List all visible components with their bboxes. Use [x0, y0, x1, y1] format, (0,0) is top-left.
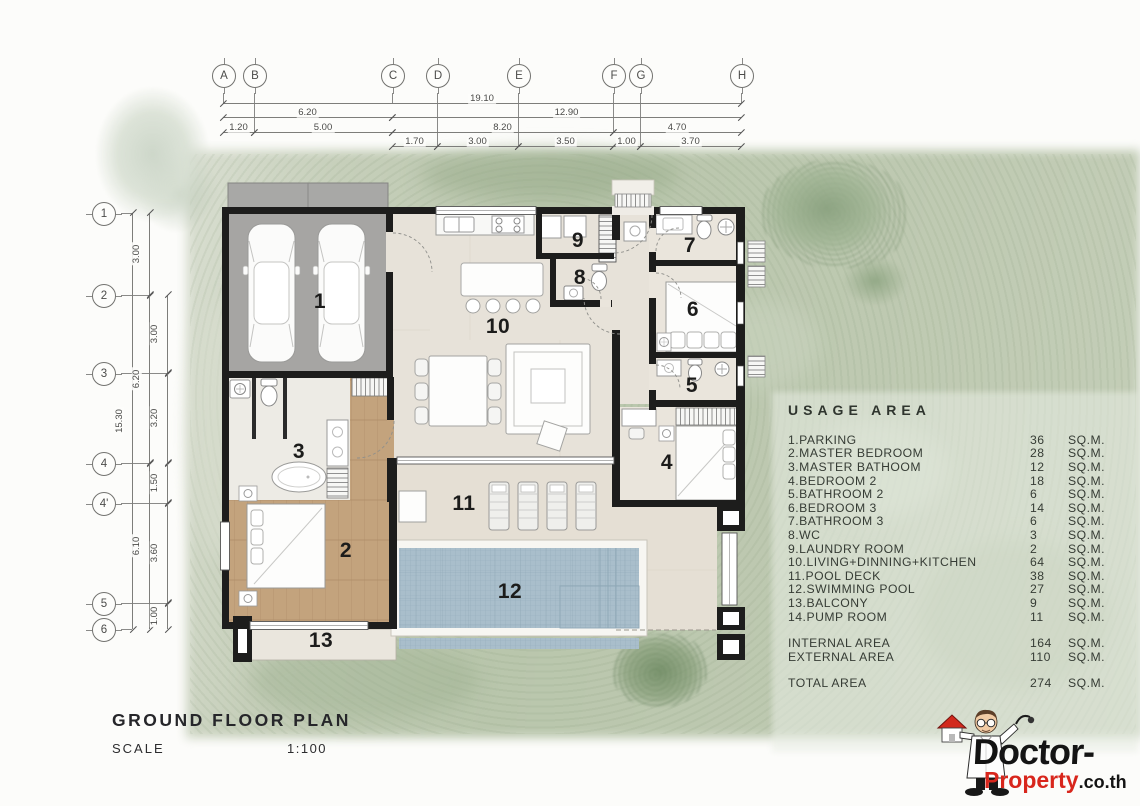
usage-row: 5.BATHROOM 26SQ.M. [788, 487, 1124, 501]
ac-unit-icon [748, 266, 765, 287]
dim-left: 1.00 [167, 603, 168, 629]
scale-label: SCALE [112, 741, 165, 756]
lounger-icon [518, 482, 538, 530]
dim-top: 12.90 [392, 117, 741, 118]
room-label-bathroom-3: 7 [684, 234, 696, 258]
chair-icon [629, 428, 644, 439]
usage-row: 11.POOL DECK38SQ.M. [788, 569, 1124, 583]
shower-icon [230, 380, 250, 398]
grid-marker-H: H [730, 64, 754, 88]
grid-marker-E: E [507, 64, 531, 88]
blueprint-canvas: 1 2 3 4 5 6 7 8 9 10 11 12 13 A B C D E … [0, 0, 1140, 806]
dim-left: 3.60 [167, 503, 168, 603]
dim-top: 6.20 [223, 117, 392, 118]
usage-row: 9.LAUNDRY ROOM2SQ.M. [788, 542, 1124, 556]
dryer-icon [624, 222, 646, 241]
dim-top: 3.50 [518, 146, 613, 147]
ac-unit-icon [748, 356, 765, 377]
dim-left: 1.50 [167, 463, 168, 503]
dim-left: 3.00 [149, 213, 150, 295]
dim-top: 1.70 [392, 146, 437, 147]
usage-summary-row: EXTERNAL AREA110SQ.M. [788, 650, 1124, 664]
room-label-pool-deck: 11 [452, 492, 475, 516]
grid-marker-D: D [426, 64, 450, 88]
cabinet-icon [327, 468, 348, 498]
usage-row: 1.PARKING36SQ.M. [788, 433, 1124, 447]
room-label-master-bedroom: 2 [340, 539, 352, 563]
dim-left: 3.20 [167, 373, 168, 463]
logo-brand-red: Property.co.th [984, 767, 1127, 793]
logo-brand-black: Doctor- [972, 731, 1095, 772]
shower-icon [718, 219, 734, 235]
grid-marker-5: 5 [92, 592, 116, 616]
toilet-icon [261, 379, 277, 406]
grid-marker-4p: 4' [92, 492, 116, 516]
room-label-balcony: 13 [309, 629, 333, 653]
room-label-bathroom-2: 5 [686, 374, 698, 398]
dim-left: 6.20 [149, 295, 150, 463]
bed-icon [239, 486, 325, 606]
room-label-wc: 8 [574, 266, 586, 290]
car-icon [243, 224, 300, 362]
toilet-icon [592, 264, 608, 291]
grid-marker-A: A [212, 64, 236, 88]
lounger-icon [576, 482, 596, 530]
dim-top: 3.00 [437, 146, 518, 147]
lounger-icon [547, 482, 567, 530]
usage-total-row: TOTAL AREA274SQ.M. [788, 677, 1124, 691]
grid-marker-6: 6 [92, 618, 116, 642]
entry-step [612, 180, 654, 195]
usage-row: 3.MASTER BATHOOM12SQ.M. [788, 460, 1124, 474]
grid-marker-4: 4 [92, 452, 116, 476]
grid-marker-G: G [629, 64, 653, 88]
usage-summary-row: INTERNAL AREA164SQ.M. [788, 636, 1124, 650]
usage-table-title: USAGE AREA [788, 402, 1124, 418]
dim-top: 1.00 [613, 146, 640, 147]
vanity-icon [327, 420, 348, 466]
dim-top-total: 19.10 [223, 103, 741, 104]
vanity-icon [657, 360, 681, 376]
usage-row: 8.WC3SQ.M. [788, 528, 1124, 542]
dim-top: 5.00 [254, 132, 392, 133]
desk-icon [622, 409, 656, 426]
room-label-bedroom-3: 6 [687, 298, 699, 322]
usage-row: 13.BALCONY9SQ.M. [788, 596, 1124, 610]
deck-table-icon [399, 491, 426, 522]
closet-icon [676, 408, 738, 425]
usage-row: 4.BEDROOM 218SQ.M. [788, 474, 1124, 488]
dim-left: 3.00 [167, 295, 168, 373]
grid-marker-F: F [602, 64, 626, 88]
dining-table-icon [415, 356, 501, 426]
page-title: GROUND FLOOR PLAN [112, 710, 351, 731]
kitchen-counter-icon [436, 214, 534, 235]
dim-left-total: 15.30 [132, 213, 133, 629]
usage-row: 7.BATHROOM 36SQ.M. [788, 515, 1124, 529]
room-label-master-bathroom: 3 [293, 440, 305, 464]
usage-area-table: USAGE AREA 1.PARKING36SQ.M. 2.MASTER BED… [788, 402, 1124, 690]
pool-infinity-edge [399, 638, 639, 649]
hallway-floor [614, 214, 655, 404]
lounger-icon [489, 482, 509, 530]
room-label-pool: 12 [498, 580, 522, 604]
entry-mat [615, 194, 651, 207]
dim-top: 8.20 [392, 132, 613, 133]
grid-marker-B: B [243, 64, 267, 88]
wardrobe-icon [352, 378, 389, 396]
vanity-icon [656, 215, 692, 234]
room-label-laundry: 9 [572, 229, 584, 253]
brand-logo: Doctor- Property.co.th [900, 698, 1140, 806]
grid-marker-3: 3 [92, 362, 116, 386]
room-label-living: 10 [486, 315, 510, 339]
shower-icon [715, 362, 729, 376]
usage-row: 6.BEDROOM 314SQ.M. [788, 501, 1124, 515]
scale-value: 1:100 [287, 741, 327, 756]
room-label-parking: 1 [314, 290, 326, 314]
bathtub-icon [272, 462, 326, 492]
usage-row: 10.LIVING+DINNING+KITCHEN64SQ.M. [788, 555, 1124, 569]
usage-row: 14.PUMP ROOM11SQ.M. [788, 610, 1124, 624]
grid-marker-C: C [381, 64, 405, 88]
ac-unit-icon [748, 241, 765, 262]
room-label-bedroom-2: 4 [661, 451, 673, 475]
grid-marker-1: 1 [92, 202, 116, 226]
toilet-icon [697, 215, 712, 239]
dim-top: 3.70 [640, 146, 741, 147]
usage-row: 2.MASTER BEDROOM28SQ.M. [788, 447, 1124, 461]
usage-row: 12.SWIMMING POOL27SQ.M. [788, 583, 1124, 597]
dim-top: 4.70 [613, 132, 741, 133]
grid-marker-2: 2 [92, 284, 116, 308]
dim-top: 1.20 [223, 132, 254, 133]
